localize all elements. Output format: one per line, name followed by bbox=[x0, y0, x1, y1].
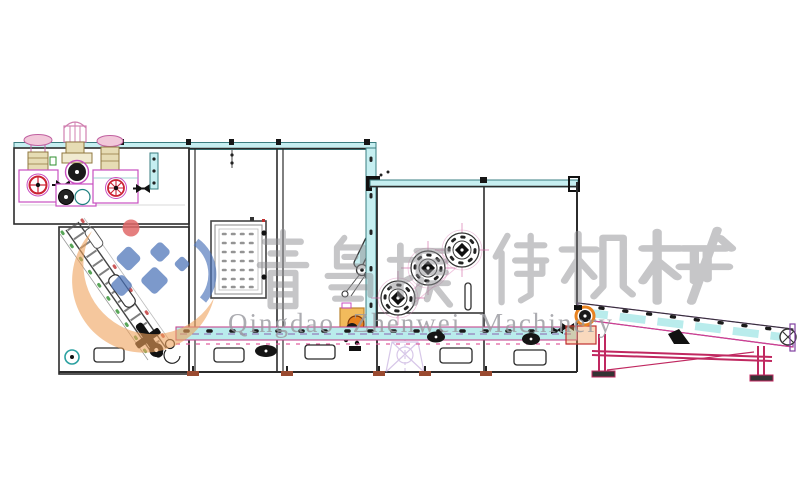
machine-line-drawing bbox=[0, 0, 800, 502]
lower-rail bbox=[370, 177, 579, 191]
drain-target bbox=[65, 350, 79, 364]
door-hinge bbox=[261, 274, 266, 279]
rail-tick bbox=[229, 139, 234, 145]
rail-tick bbox=[186, 139, 191, 145]
frame-foot bbox=[592, 371, 615, 377]
slot-gauge bbox=[465, 283, 471, 310]
perforated-door-panel bbox=[211, 217, 267, 298]
idler-roller bbox=[166, 340, 175, 349]
rail-tick bbox=[276, 139, 281, 145]
watermark-company-name-en: Qingdao Zhenwei Machinery bbox=[228, 308, 788, 339]
frame-foot bbox=[750, 375, 773, 381]
cad-drawing-canvas: Qingdao Zhenwei Machinery 青岛振伟机械 bbox=[0, 0, 800, 502]
gauge-ladder bbox=[150, 153, 158, 189]
rail-tick bbox=[364, 139, 370, 145]
door-hinge bbox=[261, 230, 266, 235]
